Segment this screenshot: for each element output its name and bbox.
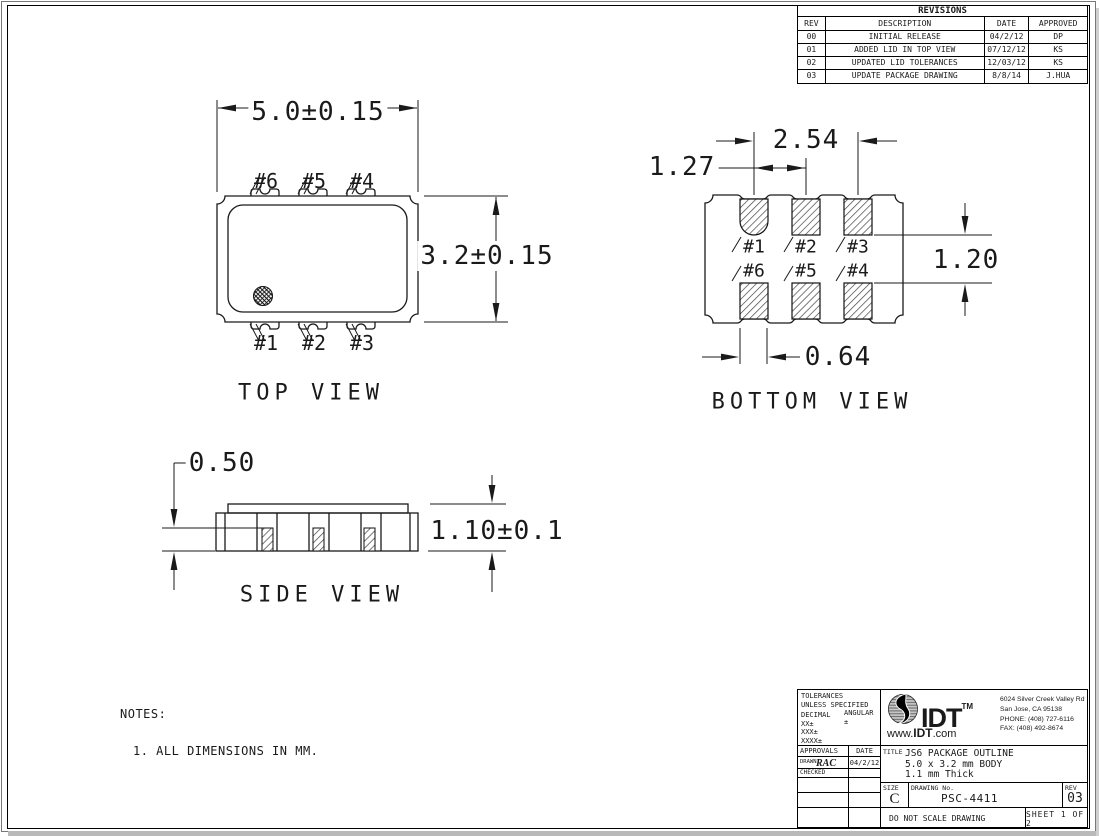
top-view-pin2-label: #2 [302, 331, 326, 355]
approvals-date-header: DATE [849, 746, 880, 756]
approvals-empty-row-2 [798, 793, 880, 808]
tolerances-angular-label: ANGULAR [844, 709, 874, 718]
pin1-marker-dot [254, 287, 273, 306]
drawing-title-cell: TITLE JS6 PACKAGE OUTLINE 5.0 x 3.2 mm B… [881, 746, 1087, 783]
top-view-package-outline [217, 196, 418, 322]
top-view-height-dim: 3.2±0.15 [417, 241, 556, 271]
bottom-view-pads [740, 199, 872, 319]
approvals-empty-row-1 [798, 778, 880, 793]
drawing-sheet: 5.0±0.15 3.2±0.15 #6 #5 #4 #1 #2 #3 TOP … [0, 0, 1099, 836]
drawn-cell: DRAWN RAC [798, 757, 849, 768]
company-address: 6024 Silver Creek Valley Rd San Jose, CA… [1000, 695, 1085, 734]
drawn-date: 04/2/12 [849, 757, 880, 768]
idt-website: www.IDT.com [887, 726, 956, 740]
drawing-title-label: TITLE [883, 748, 903, 756]
bottom-view-pin2-label: #2 [795, 237, 817, 258]
approvals-empty-row-3 [798, 808, 880, 829]
bottom-view-pin1-label: #1 [743, 237, 765, 258]
checked-row: CHECKED [798, 769, 880, 778]
revision-row-01: 01 ADDED LID IN TOP VIEW 07/12/12 KS [798, 44, 1087, 57]
sheet-number: SHEET 1 OF 2 [1026, 808, 1087, 829]
rev-cell: REV 03 [1063, 783, 1087, 807]
drawing-number-label: DRAWING No. [911, 784, 954, 792]
drawing-title-line3: 1.1 mm Thick [905, 770, 1087, 781]
revision-row-03: 03 UPDATE PACKAGE DRAWING 8/8/14 J.HUA [798, 70, 1087, 83]
top-view-width-dim: 5.0±0.15 [248, 97, 387, 127]
bottom-view-row-gap-dim: 1.20 [930, 245, 1003, 275]
bottom-view-pin3-label: #3 [847, 237, 869, 258]
revisions-header-row: REV DESCRIPTION DATE APPROVED [798, 17, 1087, 31]
size-drawing-rev-row: SIZE C DRAWING No. PSC-4411 REV 03 [881, 783, 1087, 808]
approvals-header: APPROVALS [798, 746, 849, 756]
drawing-title-line1: JS6 PACKAGE OUTLINE [905, 749, 1087, 760]
side-view-height-dim: 1.10±0.1 [427, 516, 566, 546]
pad-4 [844, 283, 872, 319]
top-view-pin3-label: #3 [350, 331, 374, 355]
tolerances-xxxx: XXXX± [801, 737, 880, 746]
tolerances-angular-value: ± [844, 718, 874, 727]
top-view-body [217, 189, 418, 329]
idt-logo-icon [887, 693, 919, 725]
side-view-standoff-dim: 0.50 [186, 448, 259, 478]
tolerances-angular: ANGULAR ± [844, 709, 874, 726]
top-view-pin6-label: #6 [254, 169, 278, 193]
bottom-view-pin6-label: #6 [743, 261, 765, 282]
tolerances-xxx: XXX± [801, 728, 880, 737]
revisions-header-rev: REV [798, 17, 826, 30]
size-cell: SIZE C [881, 783, 909, 807]
revisions-table: REVISIONS REV DESCRIPTION DATE APPROVED … [797, 5, 1088, 84]
drawn-signature: RAC [816, 758, 836, 769]
tolerances-line2: UNLESS SPECIFIED [801, 701, 880, 710]
bottom-view-pin5-label: #5 [795, 261, 817, 282]
pad-2 [792, 199, 820, 235]
title-block-left-column: TOLERANCES UNLESS SPECIFIED DECIMAL XX± … [798, 690, 881, 827]
side-view-lid [228, 504, 408, 513]
checked-label: CHECKED [798, 769, 849, 777]
tolerances-cell: TOLERANCES UNLESS SPECIFIED DECIMAL XX± … [798, 690, 880, 746]
top-view-title: TOP VIEW [238, 381, 384, 406]
revision-row-02: 02 UPDATED LID TOLERANCES 12/03/12 KS [798, 57, 1087, 70]
pad-6 [740, 283, 768, 319]
drawn-row: DRAWN RAC 04/2/12 [798, 757, 880, 769]
checked-value [849, 769, 880, 777]
title-block: TOLERANCES UNLESS SPECIFIED DECIMAL XX± … [797, 689, 1088, 828]
revisions-header-description: DESCRIPTION [826, 17, 985, 30]
idt-trademark: TM [962, 702, 974, 711]
bottom-view-half-pitch-dim: 1.27 [646, 152, 719, 182]
rev-value: 03 [1063, 791, 1087, 806]
notes-heading: NOTES: [120, 707, 166, 721]
size-value: C [881, 791, 908, 808]
top-view-pin4-label: #4 [350, 169, 374, 193]
bottom-view-pitch-dim: 2.54 [770, 125, 843, 155]
top-view-pin1-label: #1 [254, 331, 278, 355]
side-view-pads [262, 528, 375, 551]
bottom-view-pin4-label: #4 [847, 261, 869, 282]
side-view-title: SIDE VIEW [240, 583, 404, 608]
company-phone: PHONE: (408) 727-6116 [1000, 715, 1085, 725]
notes-item-1: 1. ALL DIMENSIONS IN MM. [133, 744, 318, 758]
pad-1 [740, 199, 768, 235]
drawn-label: DRAWN [800, 759, 817, 765]
revisions-header-date: DATE [985, 17, 1030, 30]
pad-5 [792, 283, 820, 319]
drawing-title-lines: JS6 PACKAGE OUTLINE 5.0 x 3.2 mm BODY 1.… [881, 746, 1087, 781]
footer-row: DO NOT SCALE DRAWING SHEET 1 OF 2 [881, 808, 1087, 829]
company-cell: IDTTM www.IDT.com 6024 Silver Creek Vall… [881, 690, 1087, 746]
bottom-view-title: BOTTOM VIEW [712, 390, 913, 415]
title-block-right-column: IDTTM www.IDT.com 6024 Silver Creek Vall… [881, 690, 1087, 827]
company-fax: FAX: (408) 492-8674 [1000, 724, 1085, 734]
top-view-pin5-label: #5 [302, 169, 326, 193]
revisions-title: REVISIONS [798, 6, 1087, 17]
revision-row-00: 00 INITIAL RELEASE 04/2/12 DP [798, 31, 1087, 44]
pad-3 [844, 199, 872, 235]
address-line1: 6024 Silver Creek Valley Rd [1000, 695, 1085, 705]
tolerances-line1: TOLERANCES [801, 692, 880, 701]
drawing-number-cell: DRAWING No. PSC-4411 [909, 783, 1063, 807]
dimension-arrowheads [171, 105, 969, 570]
approvals-header-row: APPROVALS DATE [798, 746, 880, 757]
drawing-number-value: PSC-4411 [941, 792, 998, 805]
address-line2: San Jose, CA 95138 [1000, 705, 1085, 715]
bottom-view-pad-width-dim: 0.64 [802, 342, 875, 372]
do-not-scale-note: DO NOT SCALE DRAWING [881, 808, 1026, 829]
revisions-header-approved: APPROVED [1029, 17, 1087, 30]
